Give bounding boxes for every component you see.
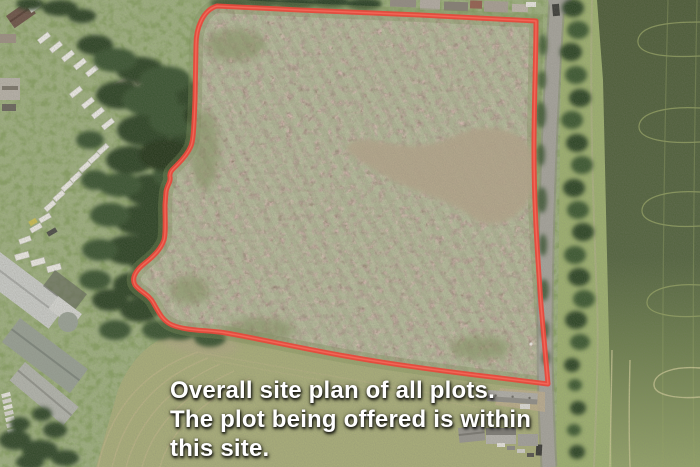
aerial-photo: Overall site plan of all plots. The plot…: [0, 0, 700, 467]
caption-overlay: Overall site plan of all plots. The plot…: [170, 376, 531, 463]
caption-line-3: this site.: [170, 434, 531, 463]
caption-line-2: The plot being offered is within: [170, 405, 531, 434]
caption-line-1: Overall site plan of all plots.: [170, 376, 531, 405]
